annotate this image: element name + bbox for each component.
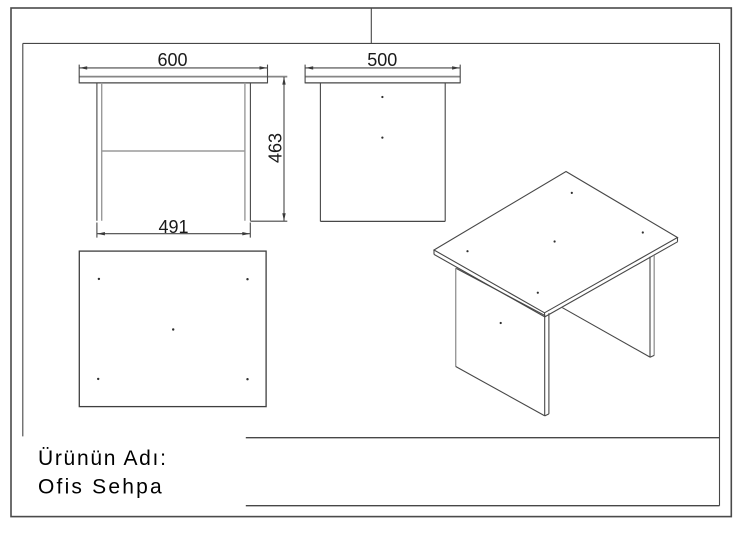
svg-text:600: 600: [157, 50, 187, 70]
svg-text:Ürünün Adı:: Ürünün Adı:: [38, 447, 168, 470]
svg-text:500: 500: [367, 50, 397, 70]
svg-text:Ofis Sehpa: Ofis Sehpa: [38, 476, 164, 499]
svg-text:463: 463: [266, 133, 286, 163]
svg-text:491: 491: [158, 217, 188, 237]
